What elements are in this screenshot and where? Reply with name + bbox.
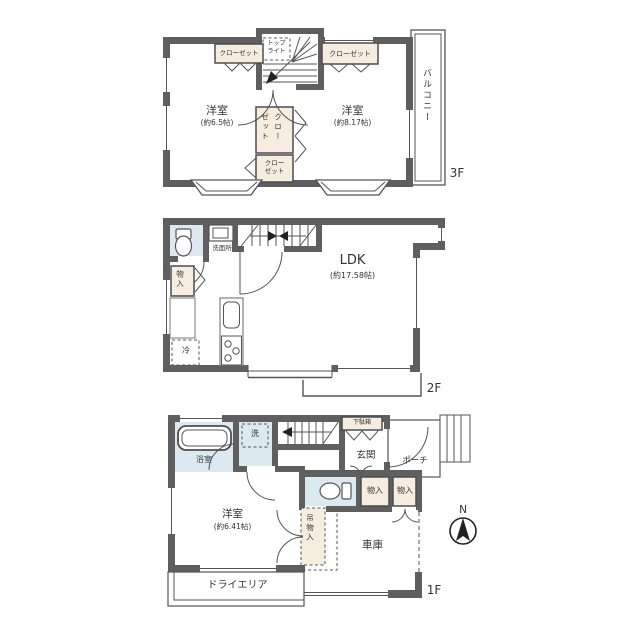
f2-floor-label: 2F [420, 381, 448, 395]
f2-washroom-label: 洗面所 [203, 245, 241, 253]
floorplan-structure-svg [0, 0, 640, 640]
f2-ldk-size: (約17.58帖) [305, 271, 400, 281]
f3-floor-label: 3F [443, 166, 471, 180]
f1-dry-area-label: ドライエリア [180, 580, 295, 592]
f2-ldk-name: LDK [310, 253, 395, 269]
f1-room-size: (約6.41帖) [190, 522, 275, 531]
f3-room-right-name: 洋室 [305, 104, 400, 117]
f3-room-right-size: (約8.17帖) [305, 118, 400, 127]
f3-balcony-label: バルコニー [421, 68, 430, 123]
f1-floor-label: 1F [420, 583, 448, 597]
f1-entrance-label: 玄関 [345, 450, 387, 461]
f1-washer-label: 洗 [246, 429, 264, 439]
compass-north-label: N [455, 504, 471, 517]
f1-shoe-cabinet-label: 下駄箱 [344, 419, 380, 426]
f3-closet-top-left-label: クローゼット [215, 50, 263, 58]
f3-closet-top-right-label: クローゼット [322, 50, 378, 58]
f3-room-left-size: (約6.5帖) [172, 118, 262, 127]
f1-bathroom-label: 浴室 [185, 455, 223, 465]
f1-hanging-storage-label: 吊物入 [306, 514, 314, 543]
f3-closet-bottom-label: クローゼット [256, 159, 293, 175]
f3-room-left-name: 洋室 [172, 104, 262, 117]
f1-storage-b-label: 物入 [391, 486, 419, 496]
f1-garage-label: 車庫 [345, 539, 400, 552]
f3-closet-mid-label-left: ゼット [261, 113, 269, 142]
f1-storage-a-label: 物入 [361, 486, 389, 496]
f2-storage-label: 物入 [176, 270, 184, 289]
north-compass-icon [450, 518, 476, 544]
f3-closet-mid-label-right: クロー [274, 113, 282, 142]
f3-skylight-label: トップライト [263, 40, 290, 55]
f2-fridge-label: 冷 [176, 346, 196, 356]
floorplan-canvas: 洋室 (約6.5帖) 洋室 (約8.17帖) クローゼット クローゼット トップ… [0, 0, 640, 640]
f1-porch-label: ポーチ [394, 456, 436, 466]
f1-room-name: 洋室 [190, 508, 275, 521]
